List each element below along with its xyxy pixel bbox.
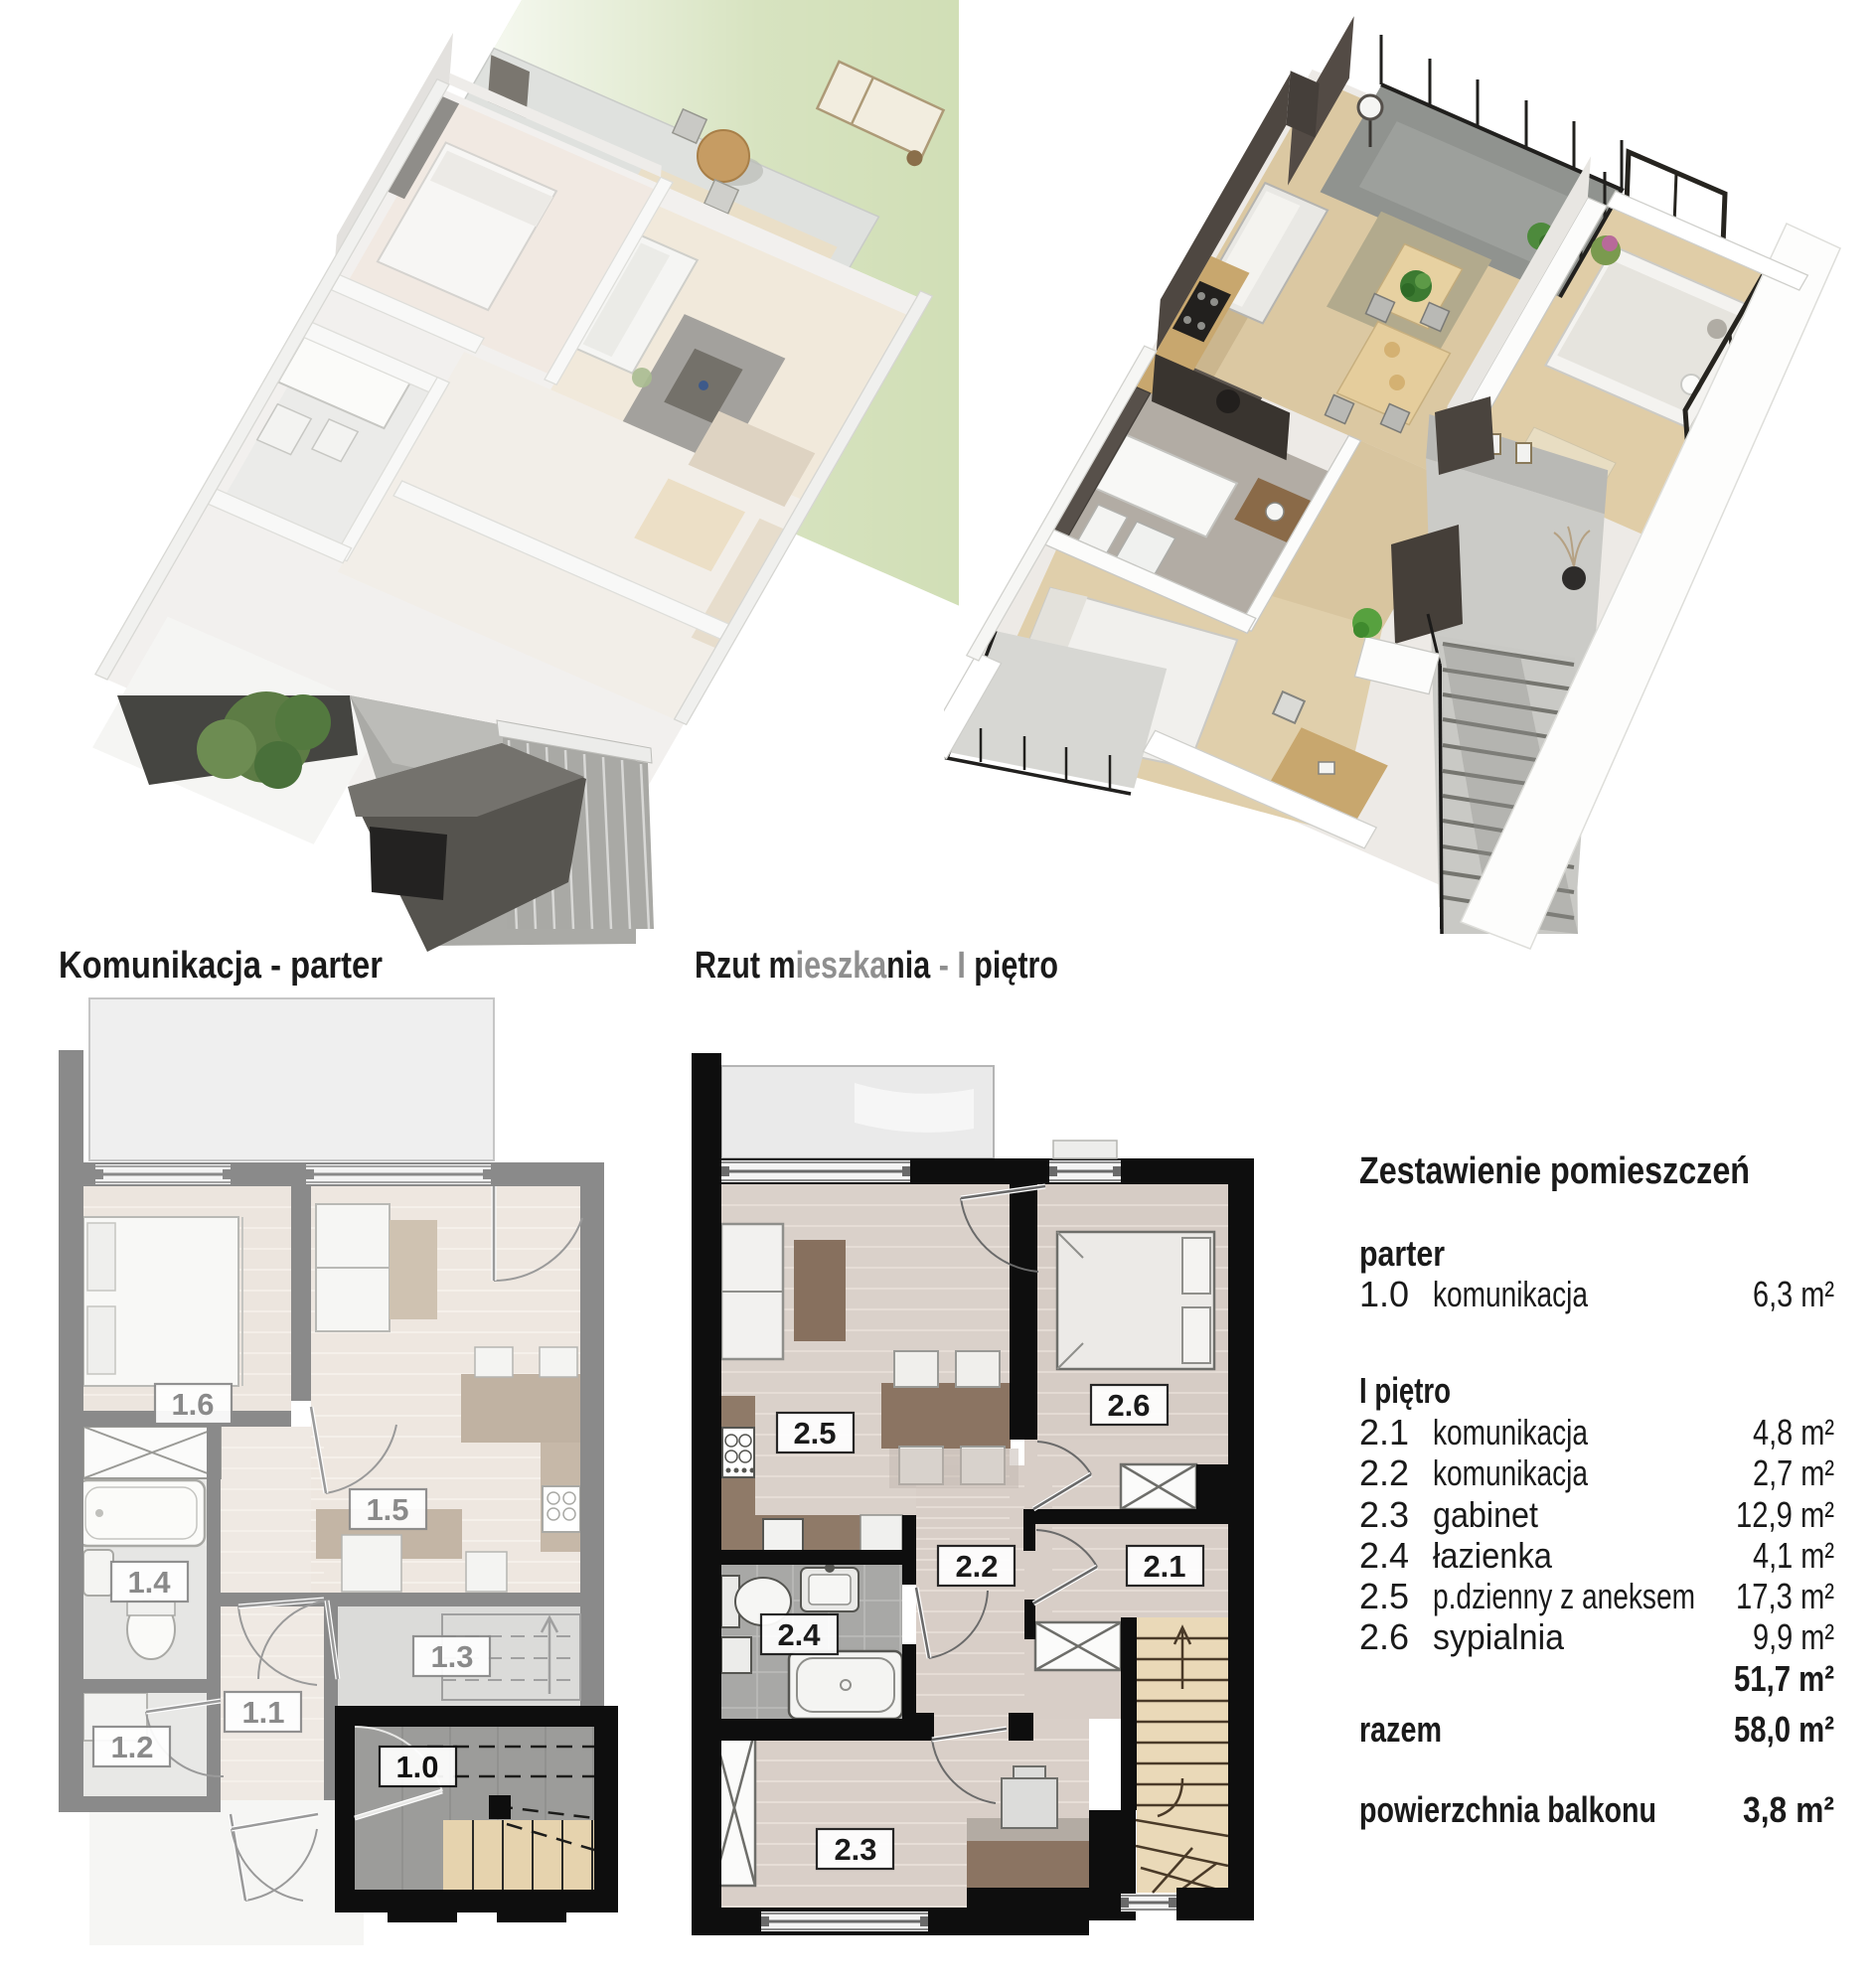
svg-text:1.4: 1.4: [127, 1565, 171, 1600]
svg-text:2.4: 2.4: [777, 1617, 821, 1652]
svg-text:12,9 m²: 12,9 m²: [1736, 1494, 1834, 1535]
svg-text:9,9 m²: 9,9 m²: [1753, 1616, 1834, 1657]
svg-text:2,7 m²: 2,7 m²: [1753, 1452, 1834, 1493]
svg-text:p.dzienny z aneksem: p.dzienny z aneksem: [1433, 1576, 1695, 1616]
svg-text:2.3: 2.3: [834, 1832, 876, 1867]
svg-text:1.0: 1.0: [1359, 1274, 1409, 1314]
svg-text:4,8 m²: 4,8 m²: [1753, 1412, 1834, 1452]
svg-text:1.5: 1.5: [366, 1492, 408, 1527]
svg-text:Zestawienie pomieszczeń: Zestawienie pomieszczeń: [1359, 1150, 1750, 1192]
svg-text:Rzut mieszkania - I piętro: Rzut mieszkania - I piętro: [695, 945, 1058, 987]
svg-text:sypialnia: sypialnia: [1433, 1616, 1565, 1657]
svg-text:17,3 m²: 17,3 m²: [1736, 1576, 1834, 1616]
svg-text:3,8 m²: 3,8 m²: [1743, 1789, 1834, 1830]
svg-text:I piętro: I piętro: [1359, 1370, 1451, 1411]
svg-text:komunikacja: komunikacja: [1433, 1452, 1589, 1493]
svg-text:razem: razem: [1359, 1709, 1442, 1750]
svg-text:2.1: 2.1: [1359, 1412, 1409, 1452]
svg-text:2.4: 2.4: [1359, 1535, 1409, 1576]
svg-text:6,3 m²: 6,3 m²: [1753, 1274, 1834, 1314]
svg-text:2.3: 2.3: [1359, 1494, 1409, 1535]
svg-text:58,0 m²: 58,0 m²: [1734, 1709, 1834, 1750]
svg-text:2.2: 2.2: [955, 1549, 998, 1584]
svg-text:2.5: 2.5: [793, 1416, 836, 1451]
svg-text:1.2: 1.2: [110, 1730, 153, 1764]
svg-text:1.0: 1.0: [395, 1750, 438, 1784]
svg-text:komunikacja: komunikacja: [1433, 1274, 1589, 1314]
svg-text:2.6: 2.6: [1107, 1388, 1150, 1423]
svg-text:51,7 m²: 51,7 m²: [1734, 1658, 1834, 1699]
svg-text:2.1: 2.1: [1143, 1549, 1185, 1584]
svg-text:1.6: 1.6: [171, 1387, 214, 1422]
svg-text:2.6: 2.6: [1359, 1616, 1409, 1657]
svg-text:komunikacja: komunikacja: [1433, 1412, 1589, 1452]
svg-text:powierzchnia balkonu: powierzchnia balkonu: [1359, 1789, 1656, 1830]
svg-text:2.2: 2.2: [1359, 1452, 1409, 1493]
svg-text:2.5: 2.5: [1359, 1576, 1409, 1616]
svg-text:gabinet: gabinet: [1433, 1494, 1538, 1535]
svg-text:1.1: 1.1: [241, 1695, 284, 1730]
svg-text:4,1 m²: 4,1 m²: [1753, 1535, 1834, 1576]
svg-text:1.3: 1.3: [430, 1639, 473, 1674]
svg-text:parter: parter: [1359, 1233, 1445, 1274]
svg-text:Komunikacja - parter: Komunikacja - parter: [59, 945, 383, 987]
svg-text:łazienka: łazienka: [1433, 1535, 1553, 1576]
